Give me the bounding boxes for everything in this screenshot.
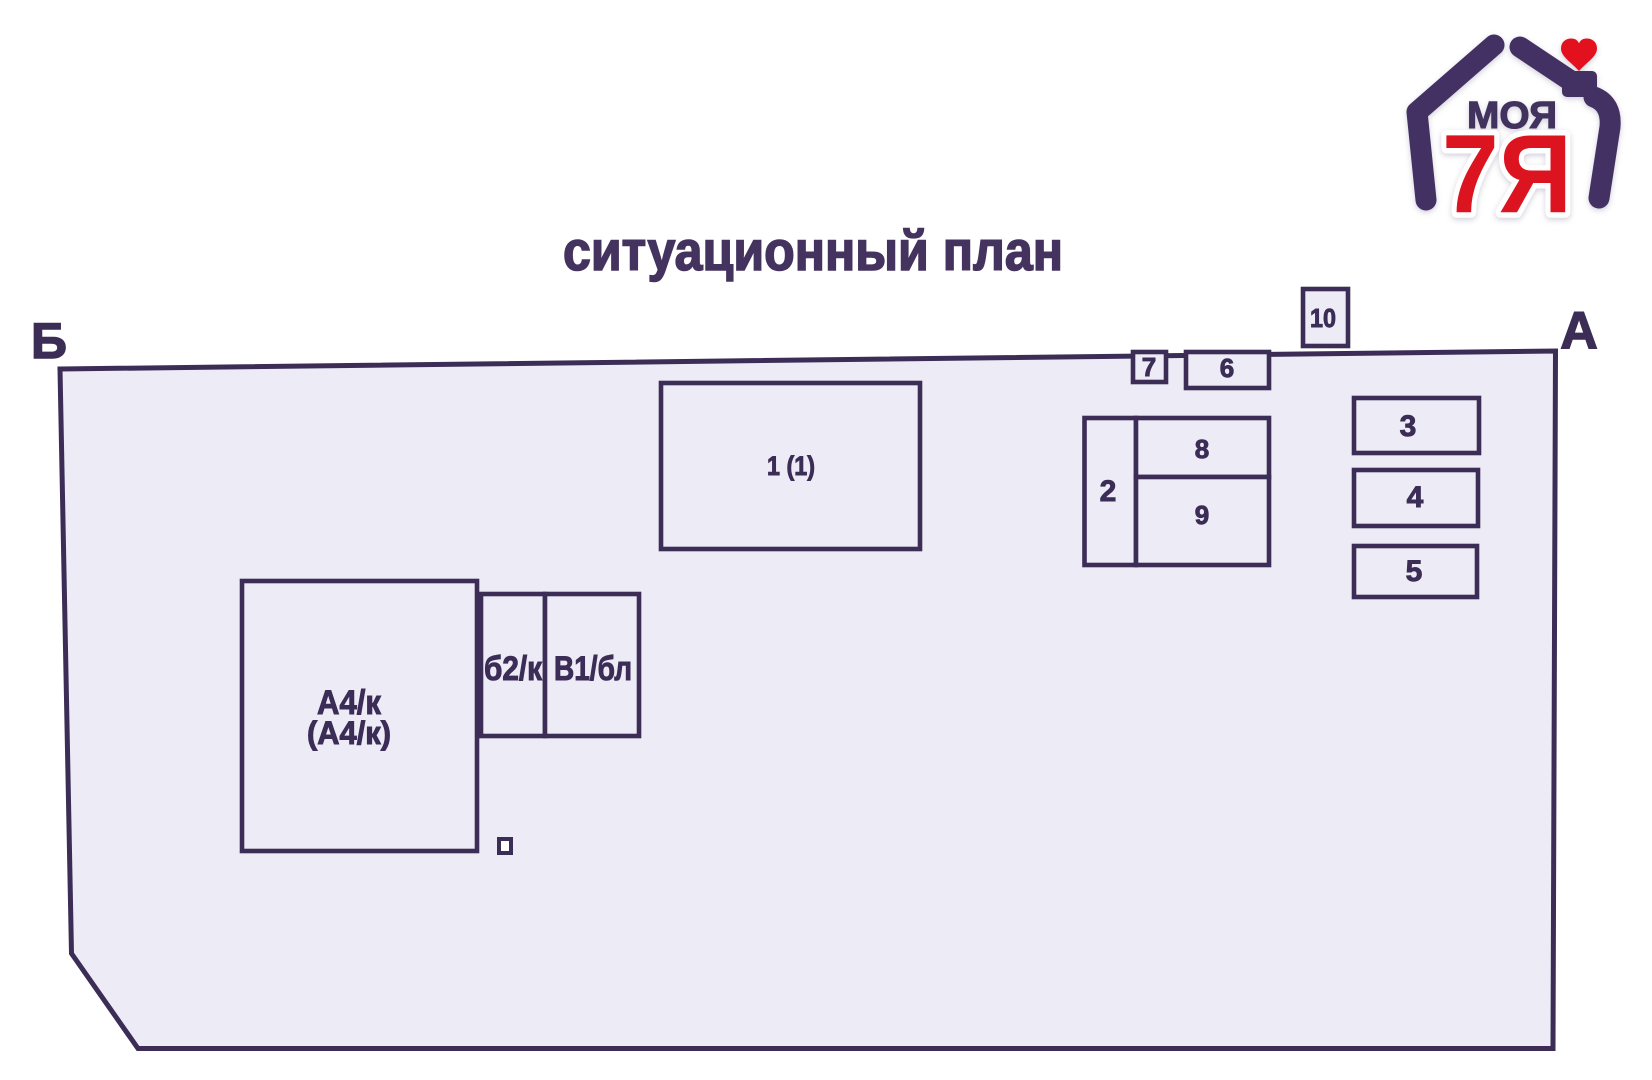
svg-text:1 (1): 1 (1) — [767, 451, 815, 481]
svg-text:б2/к: б2/к — [484, 650, 543, 688]
svg-text:2: 2 — [1100, 475, 1117, 508]
svg-text:ситуационный план: ситуационный план — [563, 219, 1063, 282]
svg-text:10: 10 — [1310, 303, 1336, 333]
svg-text:Б: Б — [31, 313, 67, 369]
svg-text:5: 5 — [1406, 555, 1423, 588]
svg-text:8: 8 — [1195, 434, 1209, 464]
svg-text:3: 3 — [1400, 410, 1417, 443]
svg-text:А: А — [1560, 302, 1598, 360]
svg-text:(А4/к): (А4/к) — [307, 715, 391, 751]
svg-text:9: 9 — [1195, 500, 1209, 530]
svg-text:7Я: 7Я — [1442, 112, 1572, 236]
svg-text:7: 7 — [1142, 352, 1156, 382]
svg-text:4: 4 — [1407, 481, 1424, 514]
svg-text:В1/бл: В1/бл — [554, 650, 632, 688]
svg-text:6: 6 — [1220, 353, 1234, 383]
